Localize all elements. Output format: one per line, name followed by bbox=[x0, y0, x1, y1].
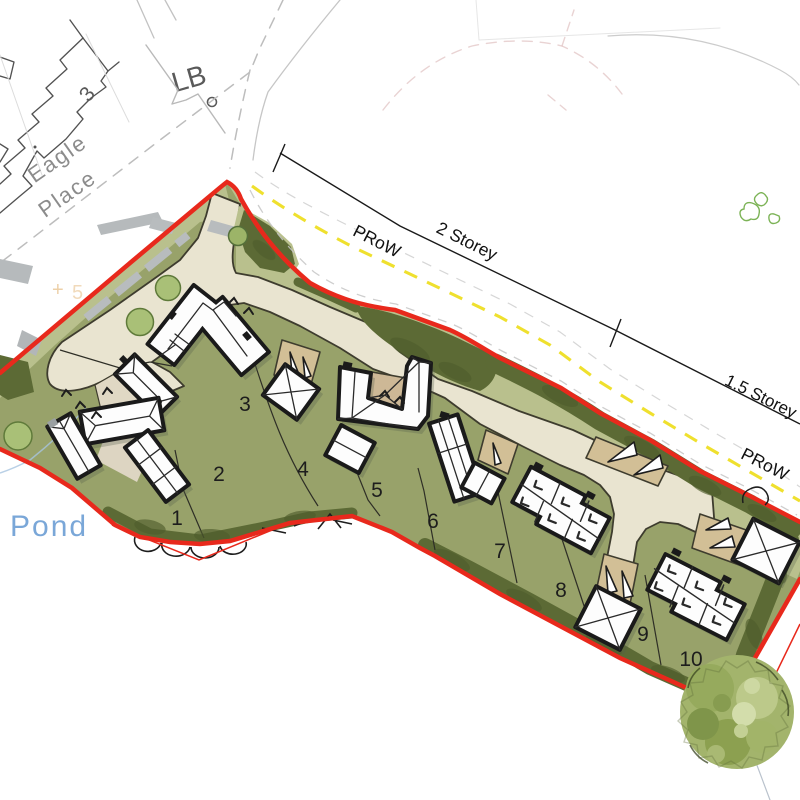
svg-text:2: 2 bbox=[213, 463, 225, 486]
svg-text:3: 3 bbox=[239, 393, 251, 416]
svg-text:Pond: Pond bbox=[10, 510, 88, 543]
svg-text:9: 9 bbox=[637, 623, 649, 646]
svg-text:+: + bbox=[52, 279, 64, 301]
svg-text:4: 4 bbox=[297, 458, 309, 481]
svg-text:8: 8 bbox=[555, 579, 567, 602]
svg-text:5: 5 bbox=[72, 282, 83, 304]
svg-text:7: 7 bbox=[494, 540, 506, 563]
svg-text:1: 1 bbox=[171, 507, 183, 530]
svg-text:10: 10 bbox=[679, 648, 702, 671]
svg-text:5: 5 bbox=[371, 479, 383, 502]
svg-text:6: 6 bbox=[427, 510, 439, 533]
